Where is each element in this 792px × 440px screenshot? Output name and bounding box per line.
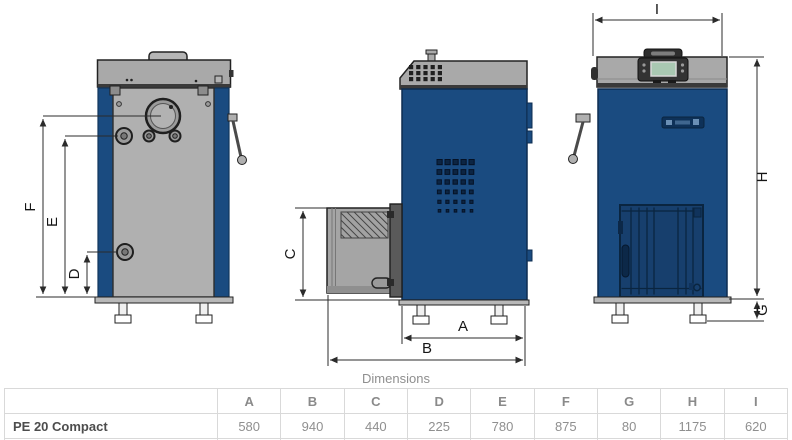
col-header-e: E bbox=[471, 389, 534, 414]
dim-label-a: A bbox=[458, 318, 468, 335]
model-name-cell: PE 20 Compact bbox=[5, 414, 218, 439]
lever-bracket bbox=[576, 114, 590, 122]
foot-pad bbox=[196, 315, 212, 323]
brand-logo-mark bbox=[693, 119, 699, 125]
panel-button bbox=[642, 63, 645, 66]
flue-notch bbox=[169, 105, 173, 109]
cleaning-lever bbox=[574, 122, 583, 156]
lever-knob bbox=[569, 155, 578, 164]
col-header-i: I bbox=[724, 389, 787, 414]
col-header-g: G bbox=[597, 389, 660, 414]
table-row: PE 20 Compact 580 940 440 225 780 875 80… bbox=[5, 414, 788, 439]
dim-label-f: F bbox=[22, 202, 39, 211]
pipe-connection-inner bbox=[147, 134, 152, 139]
screw-dot bbox=[195, 80, 198, 83]
junction-box bbox=[215, 76, 222, 83]
boiler-technical-drawing: F E D bbox=[0, 0, 792, 372]
base-plate bbox=[594, 297, 731, 303]
dim-label-i: I bbox=[655, 1, 659, 18]
value-c: 440 bbox=[344, 414, 407, 439]
side-view bbox=[327, 50, 532, 324]
foot-pad bbox=[491, 316, 507, 324]
value-b: 940 bbox=[281, 414, 344, 439]
col-header-c: C bbox=[344, 389, 407, 414]
burner-vent-hatch bbox=[341, 212, 388, 238]
boiler-dimensions-page: F E D bbox=[0, 0, 792, 440]
top-cover bbox=[98, 60, 231, 87]
rear-tab bbox=[527, 131, 532, 143]
panel-foot bbox=[668, 80, 676, 83]
flange-bolt bbox=[387, 279, 394, 286]
dim-label-c: C bbox=[282, 248, 299, 259]
value-i: 620 bbox=[724, 414, 787, 439]
rear-tab bbox=[527, 250, 532, 261]
door-hinge bbox=[618, 221, 623, 234]
base-plate bbox=[399, 300, 529, 305]
dim-label-d: D bbox=[66, 268, 83, 279]
pipe-connection-inner bbox=[173, 134, 178, 139]
foot-pad bbox=[690, 315, 706, 323]
pipe-connection-inner bbox=[121, 133, 127, 139]
screw-dot bbox=[126, 79, 129, 82]
foot-stem bbox=[694, 303, 702, 316]
dimensions-table: A B C D E F G H I PE 20 Compact 580 940 … bbox=[4, 388, 788, 440]
top-cover-edge bbox=[597, 83, 727, 87]
col-header-a: A bbox=[218, 389, 281, 414]
lever-bracket bbox=[228, 114, 237, 121]
foot-pad bbox=[413, 316, 429, 324]
foot-stem bbox=[495, 305, 503, 317]
brand-logo-mark bbox=[675, 121, 690, 125]
side-panel-left bbox=[98, 88, 113, 297]
value-g: 80 bbox=[597, 414, 660, 439]
foot-pad bbox=[612, 315, 628, 323]
lid-handle-icon bbox=[149, 52, 187, 60]
dim-label-b: B bbox=[422, 340, 432, 357]
col-header-d: D bbox=[407, 389, 470, 414]
bolt-icon bbox=[117, 102, 122, 107]
side-panel-right bbox=[214, 88, 229, 297]
screw-dot bbox=[130, 79, 133, 82]
foot-stem bbox=[200, 303, 208, 316]
hinge-icon bbox=[110, 86, 120, 95]
side-bracket bbox=[591, 67, 598, 80]
table-title: Dimensions bbox=[0, 371, 792, 386]
value-h: 1175 bbox=[661, 414, 724, 439]
brand-logo-mark bbox=[666, 120, 672, 125]
value-d: 225 bbox=[407, 414, 470, 439]
door-handle bbox=[622, 245, 629, 277]
foot-stem bbox=[119, 303, 127, 316]
side-knob bbox=[229, 70, 234, 77]
table-corner-cell bbox=[5, 389, 218, 414]
dim-label-e: E bbox=[44, 217, 61, 227]
panel-button bbox=[681, 63, 684, 66]
panel-foot bbox=[653, 80, 661, 83]
col-header-h: H bbox=[661, 389, 724, 414]
value-e: 780 bbox=[471, 414, 534, 439]
col-header-b: B bbox=[281, 389, 344, 414]
col-header-f: F bbox=[534, 389, 597, 414]
foot-pad bbox=[115, 315, 131, 323]
panel-button bbox=[642, 69, 645, 72]
return-pipe-inner bbox=[122, 249, 128, 255]
lcd-display bbox=[651, 62, 676, 76]
bolt-icon bbox=[206, 102, 211, 107]
handle-stub-cap bbox=[426, 50, 437, 54]
dim-label-g: G bbox=[754, 304, 771, 316]
panel-button bbox=[681, 69, 684, 72]
foot-stem bbox=[616, 303, 624, 316]
base-plate bbox=[95, 297, 233, 303]
lever-knob bbox=[238, 156, 247, 165]
value-a: 580 bbox=[218, 414, 281, 439]
front-view bbox=[569, 49, 732, 323]
door-peephole bbox=[694, 284, 700, 290]
boiler-body-side bbox=[402, 89, 527, 300]
back-view bbox=[95, 52, 247, 323]
foot-stem bbox=[417, 305, 425, 317]
cleaning-lever bbox=[233, 121, 241, 157]
rear-tab bbox=[527, 103, 532, 128]
hinge-icon bbox=[198, 86, 208, 95]
dim-label-h: H bbox=[754, 172, 771, 183]
carry-handle-grip bbox=[651, 52, 675, 56]
value-f: 875 bbox=[534, 414, 597, 439]
table-header-row: A B C D E F G H I bbox=[5, 389, 788, 414]
flange-bolt bbox=[387, 211, 394, 218]
door-latch bbox=[694, 208, 701, 217]
